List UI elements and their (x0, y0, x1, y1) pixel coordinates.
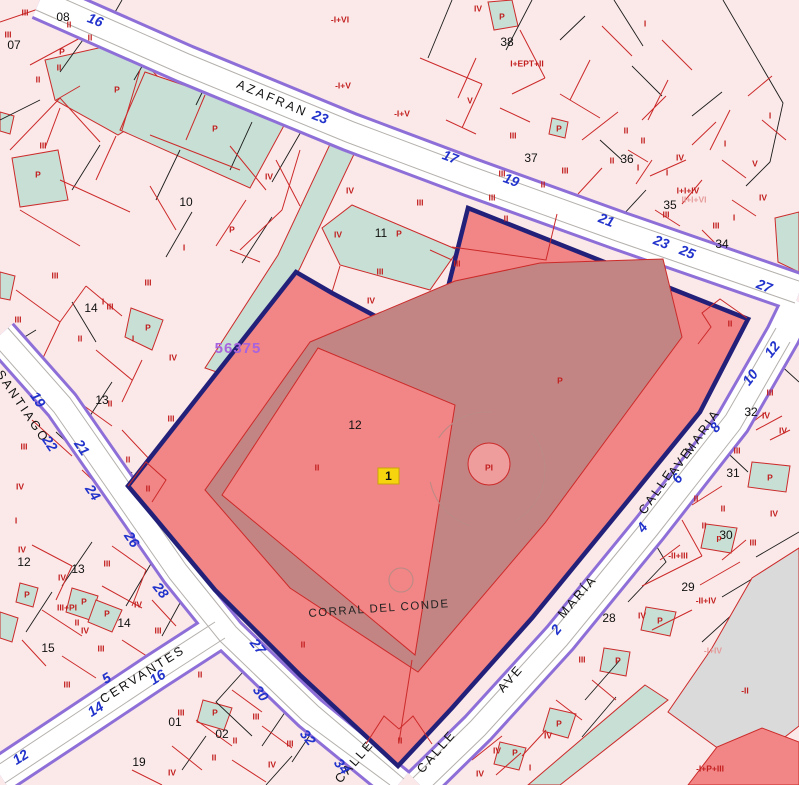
floors-label: II (233, 735, 238, 745)
floors-label: I (724, 138, 726, 148)
floors-label: p (716, 532, 721, 542)
floors-label: P (556, 718, 562, 728)
floors-label: III (766, 387, 773, 397)
floors-label: II (78, 333, 83, 343)
floors-label: P (104, 608, 110, 618)
selected-parcel-marker: 1 (378, 468, 399, 484)
floors-label: V (752, 158, 758, 168)
floors-label: -II+IV (696, 595, 717, 605)
floors-label: II (504, 213, 509, 223)
floors-label: II (57, 62, 62, 72)
parcel-number-label: 36 (620, 152, 634, 166)
floors-label: I (132, 333, 134, 343)
floors-label: IV (367, 295, 375, 305)
floors-label: III (144, 277, 151, 287)
floors-label: I (644, 18, 646, 28)
floors-label: II (108, 398, 113, 408)
floors-label: IV (493, 745, 501, 755)
floors-label: IV (334, 229, 342, 239)
block-number-label: 56375 (215, 340, 262, 357)
floors-label: I (102, 296, 104, 306)
floors-label: II (36, 74, 41, 84)
floors-label: III+PI (57, 602, 77, 612)
parcel-number-label: 12 (17, 555, 31, 569)
parcel-number-label: 14 (117, 616, 131, 630)
floors-label: III (167, 413, 174, 423)
floors-label: III (63, 679, 70, 689)
floors-label: II (198, 669, 203, 679)
floors-label: IV (169, 352, 177, 362)
parcel-number-label: 29 (681, 580, 695, 594)
floors-label: II (126, 454, 131, 464)
floors-label: P (615, 655, 621, 665)
floors-label: IV (474, 3, 482, 13)
floors-label: IV (779, 425, 787, 435)
floors-label: I (529, 762, 531, 772)
floors-label: -I+V (335, 80, 351, 90)
parcel-number-label: 11 (375, 226, 388, 240)
parcel-number-label: 15 (41, 641, 55, 655)
floors-label: III (416, 197, 423, 207)
floors-label: III (154, 625, 161, 635)
parcel-number-label: 31 (726, 466, 740, 480)
floors-label: III (51, 270, 58, 280)
floors-label: II (315, 462, 320, 472)
floors-label: II (541, 179, 546, 189)
floors-label: III (453, 258, 460, 268)
floors-label: III (749, 537, 756, 547)
parcel-number-label: 32 (744, 405, 758, 419)
floors-label: I (733, 212, 735, 222)
floors-label: IV (544, 730, 552, 740)
floors-label: P (767, 472, 773, 482)
floors-label: II (694, 493, 699, 503)
parcel-number-label: 02 (215, 727, 229, 741)
floors-label: -II+III (668, 550, 688, 560)
floors-label: II (728, 318, 733, 328)
parcel-number-label: 12 (348, 418, 362, 432)
parcel-number-label: 13 (71, 562, 85, 576)
floors-label: IV (346, 185, 354, 195)
floors-label: III (21, 7, 28, 17)
floors-label: II (212, 752, 217, 762)
floors-label: II (398, 735, 403, 745)
floors-label: I (183, 242, 185, 252)
floors-label: II (624, 125, 629, 135)
floors-label: III (20, 441, 27, 451)
floors-label: III (662, 209, 669, 219)
floors-label: III (578, 654, 585, 664)
floors-label: V (467, 95, 473, 105)
floors-label: II (702, 520, 707, 530)
floors-label: III (509, 130, 516, 140)
floors-label: IV (18, 544, 26, 554)
floors-label: III (39, 140, 46, 150)
parcel-number-label: 14 (84, 301, 98, 315)
floors-label: III (488, 192, 495, 202)
floors-label: P (396, 228, 402, 238)
floors-label: IV (81, 625, 89, 635)
marker-label: 1 (385, 469, 392, 483)
cadastral-map-viewport[interactable]: AZAFRANSANTIAGOCERVANTESCALLEAVEMARIACAL… (0, 0, 799, 785)
floors-label: III (712, 220, 719, 230)
floors-label: III (252, 711, 259, 721)
floors-label: I+EPT+II (510, 58, 544, 68)
floors-label: III (103, 558, 110, 568)
floors-label: I (15, 515, 17, 525)
floors-label: III (177, 707, 184, 717)
parcel-number-label: 07 (7, 38, 21, 52)
floors-label: II (641, 135, 646, 145)
floors-label: III (733, 445, 740, 455)
floors-label: P (499, 11, 505, 21)
floors-label: IV (759, 192, 767, 202)
parcel-number-label: 28 (602, 611, 616, 625)
floors-label: P (81, 596, 87, 606)
floors-label: P (557, 375, 563, 385)
floors-label: PI (485, 462, 493, 472)
floors-label: -II (741, 685, 749, 695)
floors-label: III (286, 738, 293, 748)
parcel-number-label: 10 (179, 195, 193, 209)
floors-label: III (4, 29, 11, 39)
floors-label: IV (476, 768, 484, 778)
floors-label: IV (762, 410, 770, 420)
parcel-number-label: 34 (715, 237, 729, 251)
floors-label: -I+V (394, 108, 410, 118)
floors-label: IV (268, 759, 276, 769)
floors-label: P (24, 589, 30, 599)
floors-label: III (106, 301, 113, 311)
floors-label: IV (58, 572, 66, 582)
floors-label: P (657, 615, 663, 625)
floors-label: III (376, 266, 383, 276)
parcel-number-label: 19 (132, 755, 146, 769)
floors-label: IV (770, 508, 778, 518)
floors-label: P (556, 123, 562, 133)
floors-label: -I+VI (331, 14, 349, 24)
floors-label: II (610, 155, 615, 165)
floors-label: III (14, 314, 21, 324)
floors-label: P (145, 322, 151, 332)
floors-label: IV (168, 767, 176, 777)
floors-label: I (769, 110, 771, 120)
floors-label: P (114, 84, 120, 94)
floors-label: II (67, 19, 72, 29)
floors-label: IV (638, 610, 646, 620)
floors-label: IV (265, 171, 273, 181)
floors-label: I (637, 162, 639, 172)
floors-label: II (88, 32, 93, 42)
floors-label: III (498, 168, 505, 178)
floors-label: IV (134, 599, 142, 609)
floors-label: P (512, 747, 518, 757)
floors-label: III (561, 165, 568, 175)
floors-label: P (59, 46, 65, 56)
parcel-number-label: 38 (500, 35, 514, 49)
floors-label-faded: -I+IV (704, 645, 723, 655)
floors-label: P (212, 707, 218, 717)
floors-label: II (75, 617, 80, 627)
floors-label-faded: II+I+VI (681, 194, 706, 204)
floors-label: III (97, 643, 104, 653)
floors-label: P (229, 224, 235, 234)
parcel-number-label: 37 (524, 151, 538, 165)
cadastral-map[interactable]: AZAFRANSANTIAGOCERVANTESCALLEAVEMARIACAL… (0, 0, 799, 785)
floors-label: -I+P+III (696, 763, 724, 773)
floors-label: II (721, 503, 726, 513)
floors-label: IV (676, 152, 684, 162)
floors-label: II (146, 483, 151, 493)
floors-label: P (35, 169, 41, 179)
parcel-number-label: 01 (168, 715, 182, 729)
floors-label: IV (16, 481, 24, 491)
floors-label: P (212, 123, 218, 133)
floors-label: I (666, 167, 668, 177)
floors-label: II (301, 639, 306, 649)
